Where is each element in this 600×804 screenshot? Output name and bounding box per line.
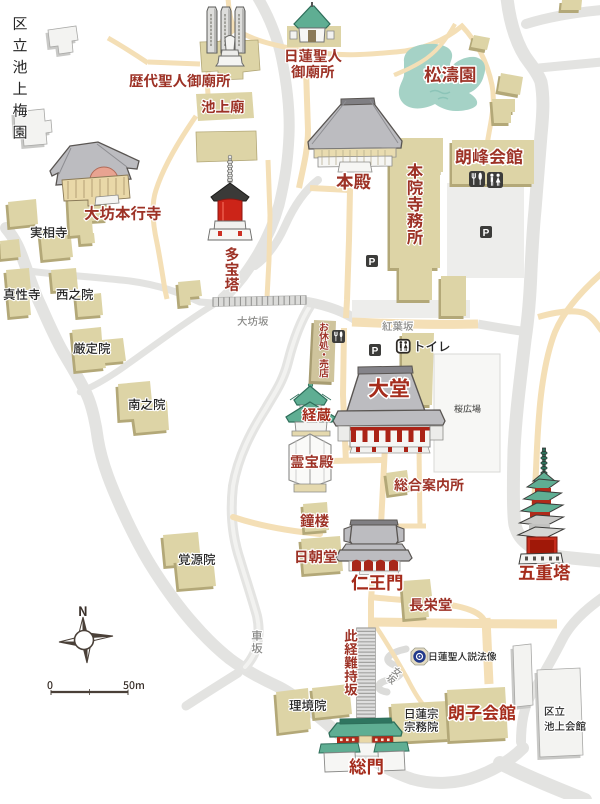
svg-text:P: P xyxy=(369,257,376,268)
svg-text:P: P xyxy=(483,228,490,239)
svg-text:P: P xyxy=(372,346,379,357)
